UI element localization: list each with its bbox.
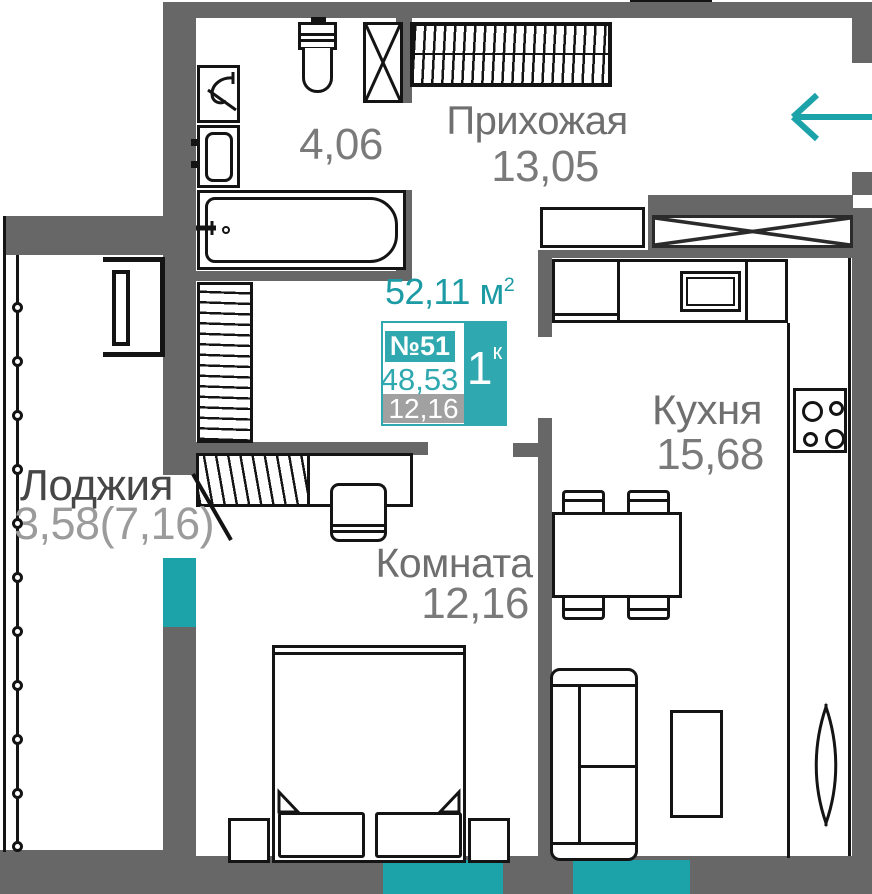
room-wardrobe (197, 282, 253, 443)
dresser-hatch (199, 456, 307, 504)
coffee-table (670, 710, 723, 818)
washing-machine (363, 22, 403, 103)
room-area-room: 12,16 (385, 582, 565, 626)
room-area-kitchen: 15,68 (630, 433, 790, 477)
sofa-seat-divider (578, 765, 635, 768)
nightstand (468, 818, 510, 863)
sofa-armrest (553, 842, 635, 845)
sofa (550, 668, 638, 861)
wall-top (163, 2, 872, 18)
balustrade-post (12, 680, 23, 691)
nightstand (228, 818, 270, 863)
balustrade-post (12, 302, 23, 313)
wall-left-top (163, 18, 196, 475)
burner (829, 401, 844, 416)
burner (825, 429, 845, 449)
kitchen-sink (680, 271, 741, 312)
wall-right-entry (852, 172, 872, 195)
room-area-loggia: 3,58(7,16) (14, 501, 214, 546)
bathroom-cabinet (197, 125, 240, 188)
stove (793, 388, 847, 453)
plant-icon (816, 704, 836, 826)
wall-left-bottom (163, 627, 196, 862)
flat-info-badge: №51 48,53 12,16 1к (381, 321, 507, 426)
room-window (383, 860, 503, 894)
toilet-bowl (302, 48, 333, 93)
kitchen-counter-side-line (787, 323, 790, 858)
loggia-outer-line (3, 216, 6, 852)
kitchen-counter (552, 259, 788, 323)
total-area-label: 52,11 м2 (385, 274, 514, 310)
wall-loggia-top (3, 216, 163, 255)
loggia-cabinet (103, 257, 165, 357)
wall-right-top (852, 18, 872, 63)
floor-plan: Прихожая 13,05 4,06 Кухня 15,68 Комната … (0, 0, 872, 894)
wall-kitchen-left-top (538, 258, 552, 337)
pillow (375, 812, 462, 858)
room-label-kitchen: Кухня (627, 389, 787, 431)
flat-number: №51 (385, 331, 455, 362)
loggia-balustrade-line (16, 255, 19, 852)
dining-table (552, 512, 682, 598)
flat-living-area: 48,53 (383, 364, 456, 396)
counter-divider (617, 262, 620, 320)
burner (802, 401, 823, 422)
balustrade-post (12, 734, 23, 745)
room-area-bathroom: 4,06 (291, 123, 391, 167)
balustrade-post (12, 356, 23, 367)
room-area-hallway: 13,05 (470, 145, 620, 189)
bathtub (197, 190, 406, 270)
toilet (298, 17, 338, 94)
entrance-arrow-icon (793, 95, 872, 139)
built-in-closet (652, 215, 853, 248)
bed-headline (275, 652, 463, 655)
wall-room-top-stub (513, 443, 538, 457)
bathtub-drain (222, 226, 230, 234)
dresser-divider (307, 456, 310, 504)
desk-chair (330, 483, 387, 542)
bathtub-inner (205, 197, 398, 263)
wall-bathroom-bottom (196, 271, 412, 281)
wall-kitchen-right-edge (848, 258, 851, 858)
hallway-wardrobe (410, 22, 612, 87)
wall-stud (191, 161, 198, 168)
hallway-cabinet (540, 207, 645, 248)
counter-divider (745, 262, 748, 320)
balustrade-post (12, 572, 23, 583)
balustrade-post (12, 841, 23, 852)
flat-room-area: 12,16 (383, 394, 464, 423)
kitchen-window (573, 860, 690, 894)
wall-stud (191, 139, 198, 146)
balustrade-post (12, 788, 23, 799)
wardrobe-rail (414, 53, 608, 55)
sofa-armrest (553, 684, 635, 687)
pillow (278, 812, 365, 858)
bathroom-cabinet-inner (205, 132, 233, 182)
flat-info-left: №51 48,53 12,16 (383, 323, 464, 424)
fridge-door-line (555, 313, 617, 316)
wall-right-main (852, 258, 872, 894)
balustrade-post (12, 626, 23, 637)
flat-type: 1к (464, 323, 505, 424)
wall-hall-kitchen (538, 250, 648, 258)
burner (803, 432, 818, 447)
room-label-hallway: Прихожая (427, 101, 647, 141)
balcony-window (163, 558, 196, 627)
wall-right-notch (853, 208, 872, 258)
balustrade-post (12, 410, 23, 421)
loggia-cabinet-door (112, 270, 130, 346)
washbasin-cabinet (197, 65, 240, 123)
room-label-room: Комната (364, 543, 544, 584)
